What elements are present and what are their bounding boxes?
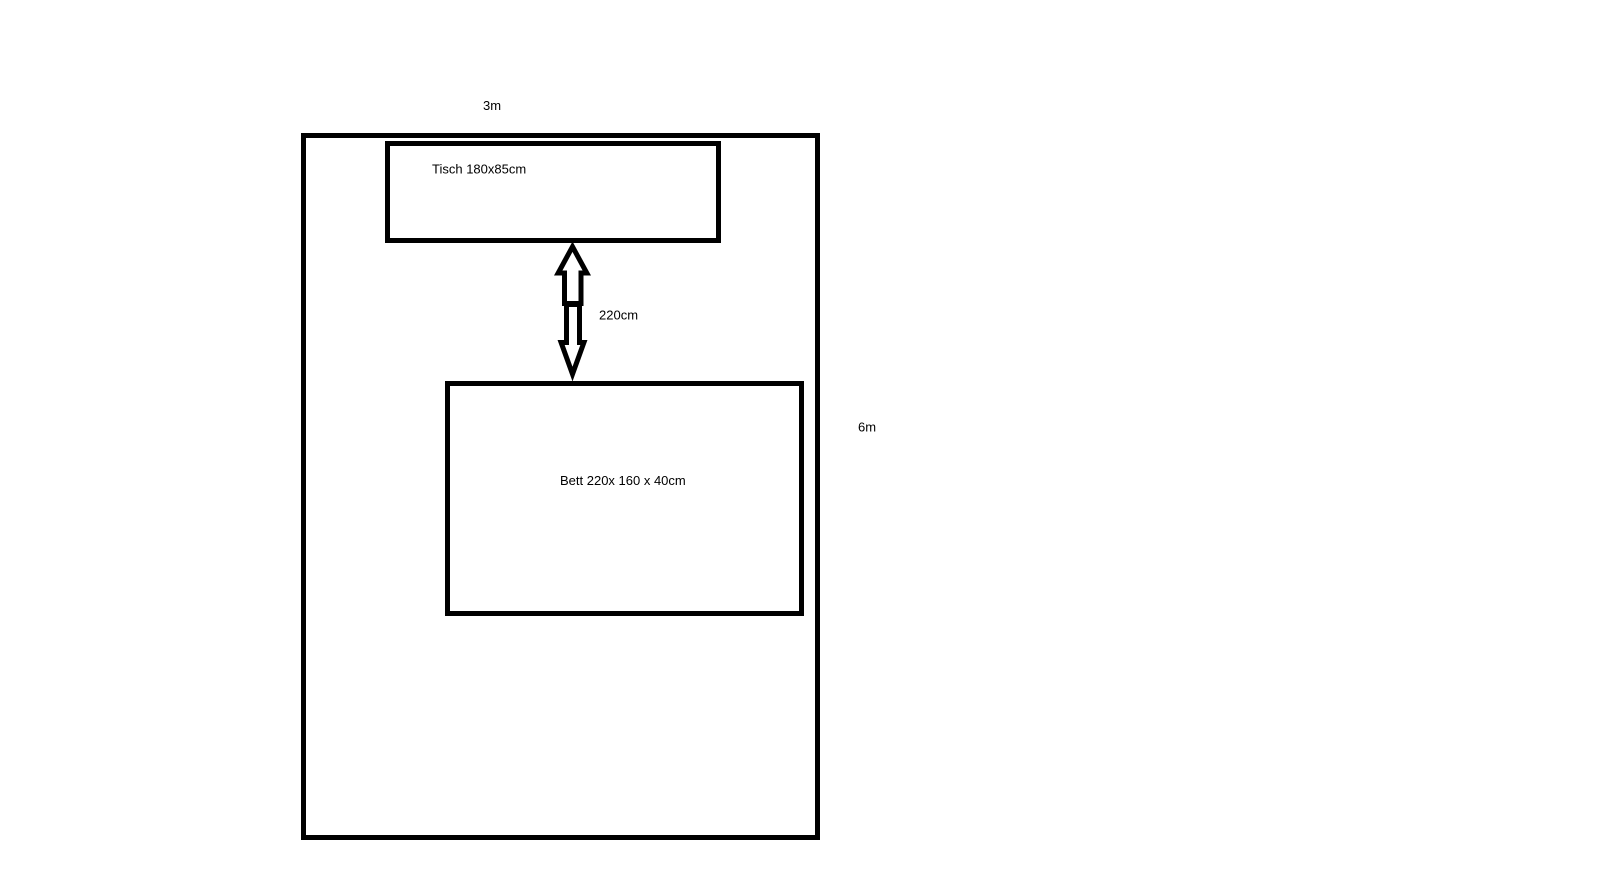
svg-text:6m: 6m: [858, 420, 876, 435]
svg-text:Bett 220x 160 x 40cm: Bett 220x 160 x 40cm: [560, 473, 686, 488]
svg-text:3m: 3m: [483, 98, 501, 113]
svg-text:Tisch 180x85cm: Tisch 180x85cm: [432, 162, 526, 177]
svg-text:220cm: 220cm: [599, 308, 638, 323]
